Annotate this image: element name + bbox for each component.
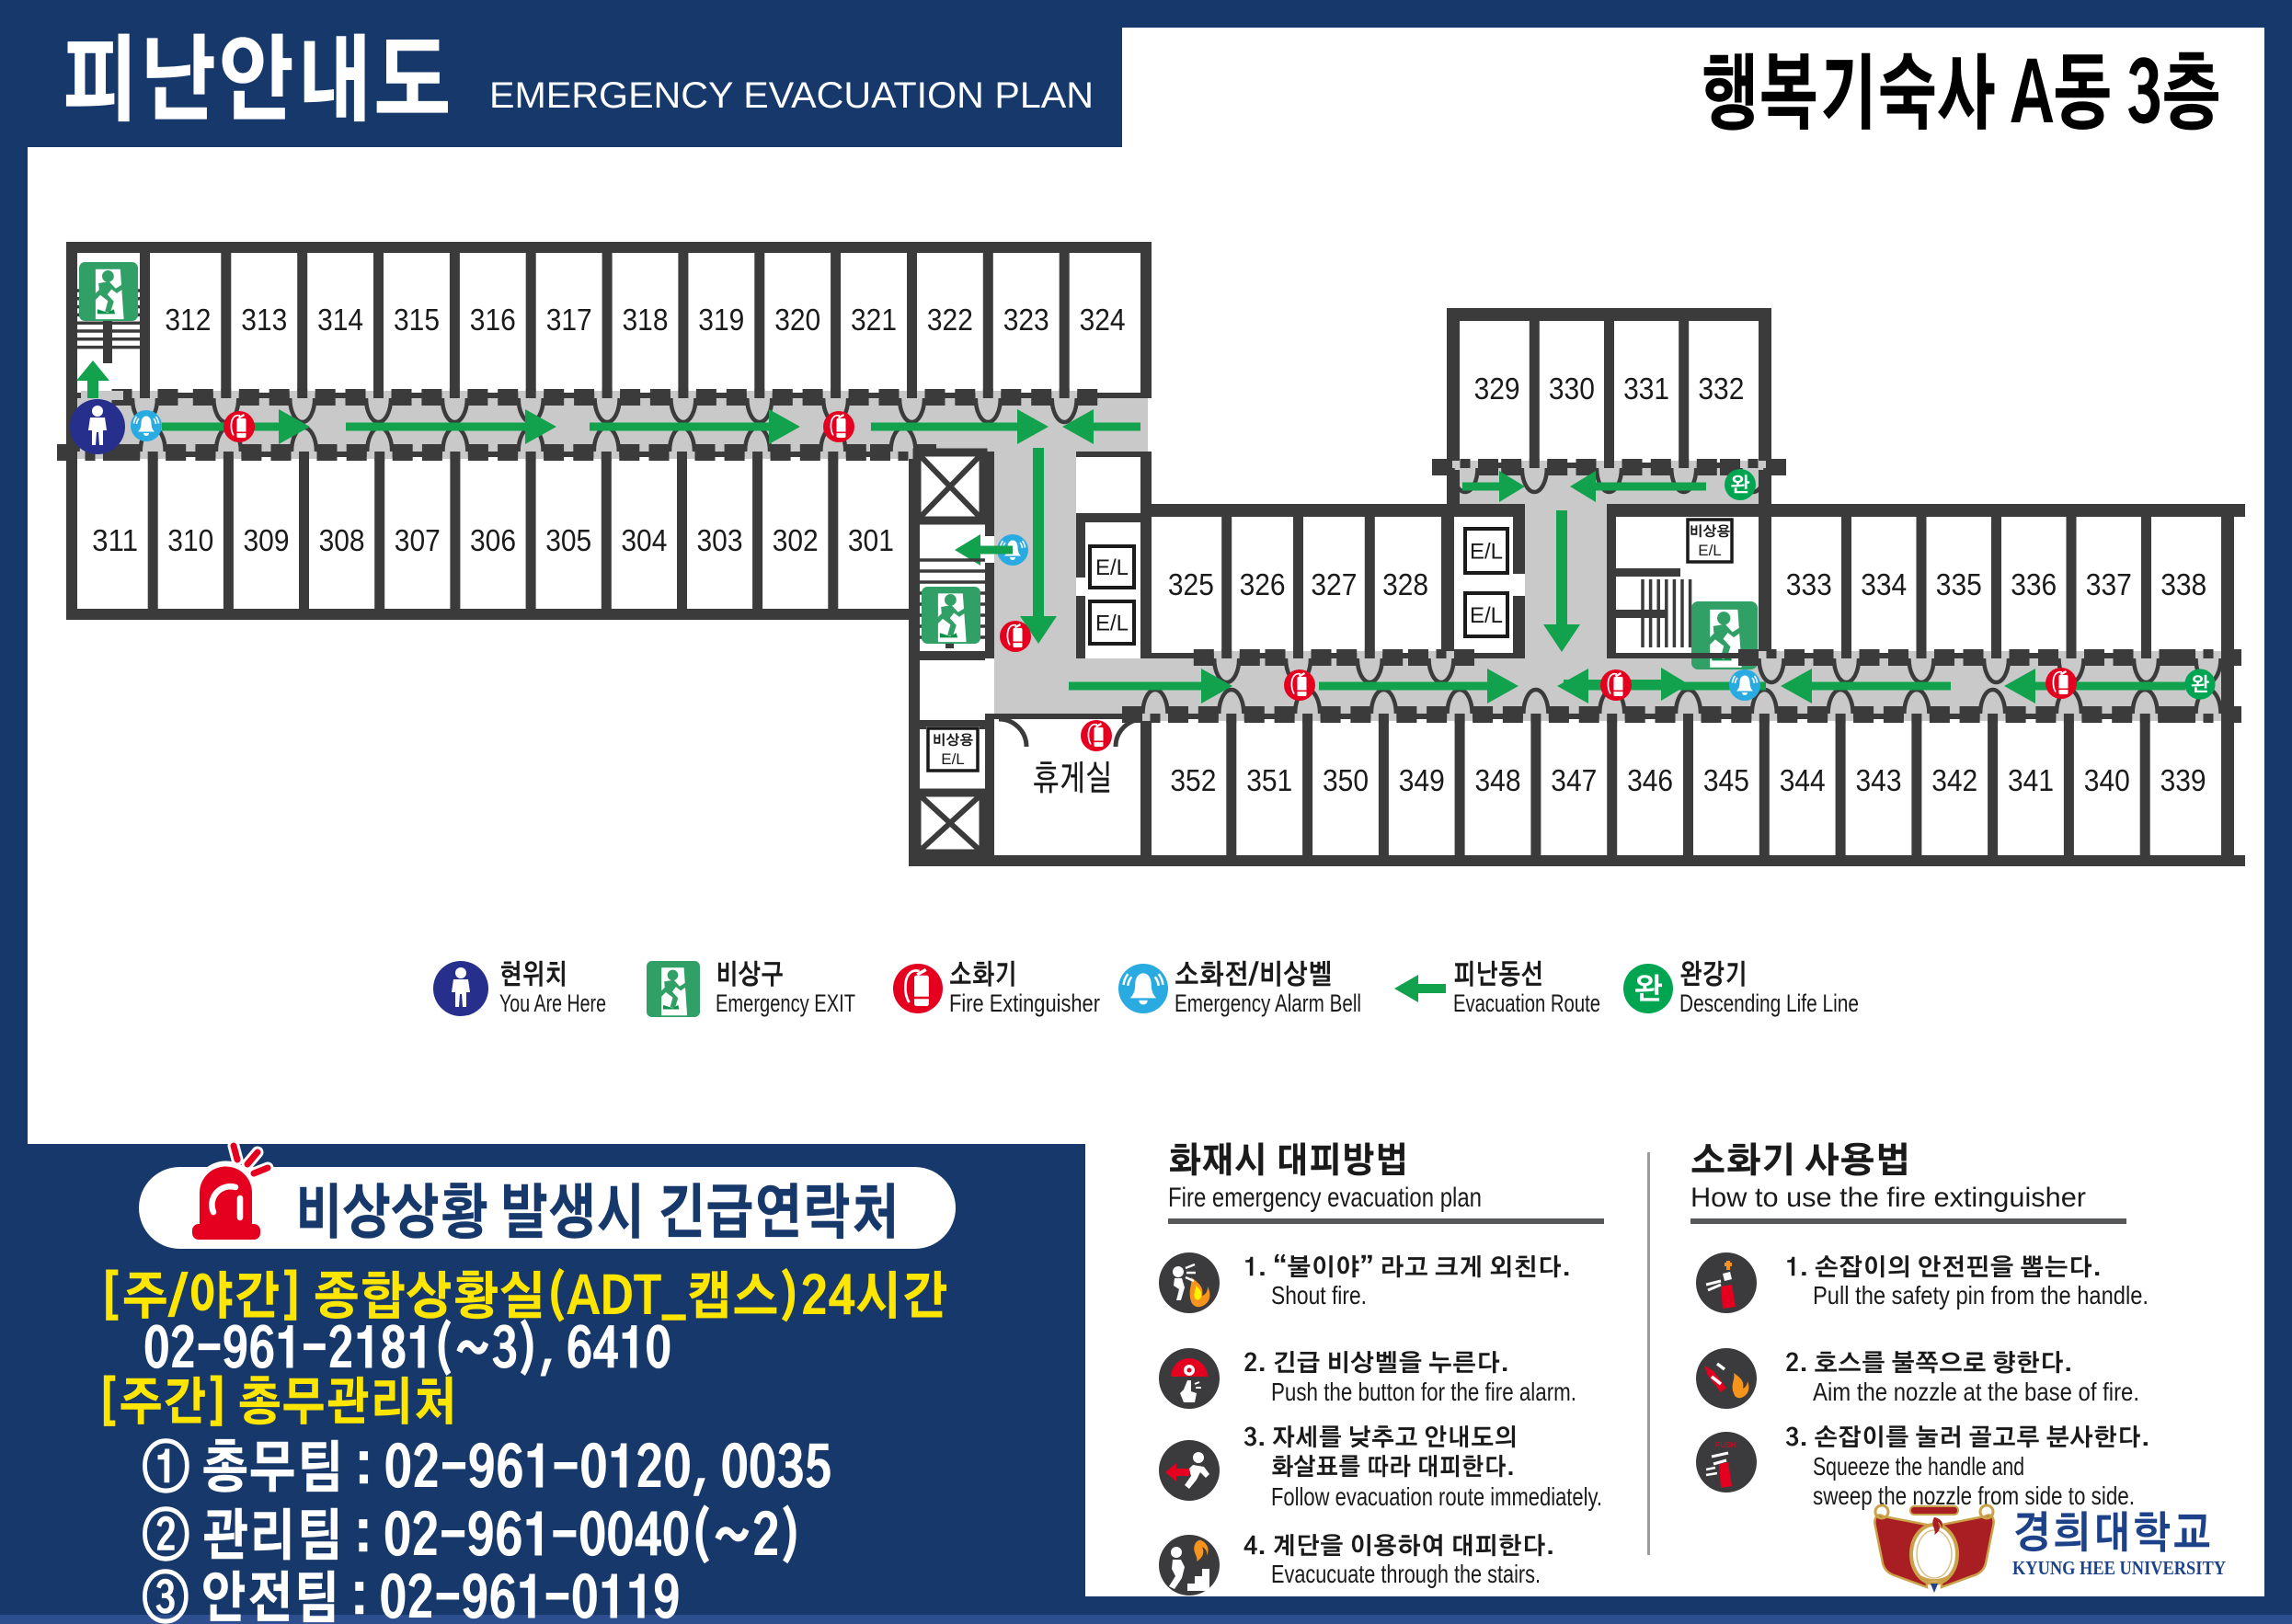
svg-text:307: 307 [395, 523, 441, 557]
svg-text:333: 333 [1786, 567, 1832, 601]
svg-text:sweep the nozzle from side to: sweep the nozzle from side to side. [1813, 1481, 2135, 1510]
svg-text:309: 309 [244, 523, 290, 557]
svg-text:Fire emergency evacuation plan: Fire emergency evacuation plan [1168, 1183, 1482, 1213]
svg-text:312: 312 [165, 303, 211, 337]
svg-text:Squeeze the handle and: Squeeze the handle and [1813, 1452, 2024, 1481]
svg-text:344: 344 [1780, 763, 1826, 797]
svg-text:310: 310 [167, 523, 213, 557]
svg-text:330: 330 [1549, 372, 1595, 406]
svg-text:Emergency EXIT: Emergency EXIT [716, 989, 855, 1017]
svg-text:303: 303 [697, 523, 743, 557]
svg-text:Emergency Alarm Bell: Emergency Alarm Bell [1175, 989, 1361, 1017]
svg-text:Aim the nozzle at the base of: Aim the nozzle at the base of fire. [1813, 1378, 2139, 1406]
svg-text:341: 341 [2008, 763, 2054, 797]
svg-text:327: 327 [1311, 567, 1357, 601]
svg-text:349: 349 [1399, 763, 1445, 797]
svg-text:335: 335 [1936, 567, 1982, 601]
svg-text:Descending Life Line: Descending Life Line [1679, 989, 1859, 1017]
svg-text:340: 340 [2084, 763, 2130, 797]
svg-text:E/L: E/L [1095, 611, 1129, 635]
svg-text:E/L: E/L [1470, 603, 1503, 628]
svg-text:318: 318 [623, 303, 669, 337]
svg-text:337: 337 [2086, 567, 2132, 601]
svg-text:324: 324 [1080, 303, 1126, 337]
svg-text:351: 351 [1246, 763, 1292, 797]
svg-text:325: 325 [1168, 567, 1214, 601]
svg-text:338: 338 [2160, 567, 2206, 601]
svg-text:326: 326 [1240, 567, 1286, 601]
svg-text:343: 343 [1856, 763, 1902, 797]
svg-text:352: 352 [1170, 763, 1216, 797]
svg-text:316: 316 [470, 303, 516, 337]
svg-text:345: 345 [1703, 763, 1749, 797]
svg-text:Push the button for the fire a: Push the button for the fire alarm. [1271, 1378, 1576, 1406]
svg-text:334: 334 [1861, 567, 1907, 601]
svg-text:331: 331 [1623, 372, 1669, 406]
svg-text:E/L: E/L [1095, 555, 1129, 580]
svg-text:317: 317 [546, 303, 592, 337]
svg-text:332: 332 [1698, 372, 1744, 406]
svg-text:305: 305 [545, 523, 591, 557]
svg-text:Follow evacuation route immedi: Follow evacuation route immediately. [1271, 1482, 1602, 1511]
svg-text:347: 347 [1551, 763, 1597, 797]
svg-text:How to use the fire extinguish: How to use the fire extinguisher [1690, 1183, 2086, 1213]
svg-text:E/L: E/L [1470, 539, 1503, 564]
svg-text:Fire Extinguisher: Fire Extinguisher [949, 989, 1100, 1017]
svg-text:342: 342 [1931, 763, 1977, 797]
svg-text:329: 329 [1474, 372, 1520, 406]
svg-text:Evacucuate through the stairs.: Evacucuate through the stairs. [1271, 1560, 1541, 1588]
svg-text:Shout fire.: Shout fire. [1271, 1281, 1367, 1309]
svg-text:320: 320 [774, 303, 820, 337]
svg-text:321: 321 [851, 303, 897, 337]
svg-text:348: 348 [1475, 763, 1521, 797]
svg-text:323: 323 [1003, 303, 1049, 337]
svg-text:306: 306 [470, 523, 516, 557]
svg-text:308: 308 [319, 523, 365, 557]
svg-text:Evacuation Route: Evacuation Route [1453, 989, 1600, 1017]
svg-text:339: 339 [2160, 763, 2206, 797]
svg-text:You Are Here: You Are Here [499, 989, 606, 1017]
svg-text:304: 304 [621, 523, 667, 557]
svg-text:346: 346 [1627, 763, 1673, 797]
svg-text:311: 311 [92, 523, 138, 557]
svg-text:EMERGENCY EVACUATION PLAN: EMERGENCY EVACUATION PLAN [489, 75, 1094, 116]
svg-text:KYUNG HEE UNIVERSITY: KYUNG HEE UNIVERSITY [2012, 1557, 2226, 1579]
svg-text:PUSH: PUSH [1715, 1441, 1736, 1449]
svg-text:328: 328 [1382, 567, 1428, 601]
svg-text:322: 322 [927, 303, 973, 337]
svg-text:336: 336 [2011, 567, 2057, 601]
svg-text:315: 315 [394, 303, 440, 337]
svg-text:Pull the safety pin from the h: Pull the safety pin from the handle. [1813, 1281, 2149, 1309]
svg-text:301: 301 [848, 523, 894, 557]
svg-text:E/L: E/L [941, 750, 965, 768]
svg-text:302: 302 [773, 523, 819, 557]
svg-text:319: 319 [698, 303, 744, 337]
svg-text:314: 314 [317, 303, 363, 337]
svg-text:313: 313 [241, 303, 287, 337]
svg-text:E/L: E/L [1698, 542, 1722, 559]
svg-text:350: 350 [1323, 763, 1369, 797]
